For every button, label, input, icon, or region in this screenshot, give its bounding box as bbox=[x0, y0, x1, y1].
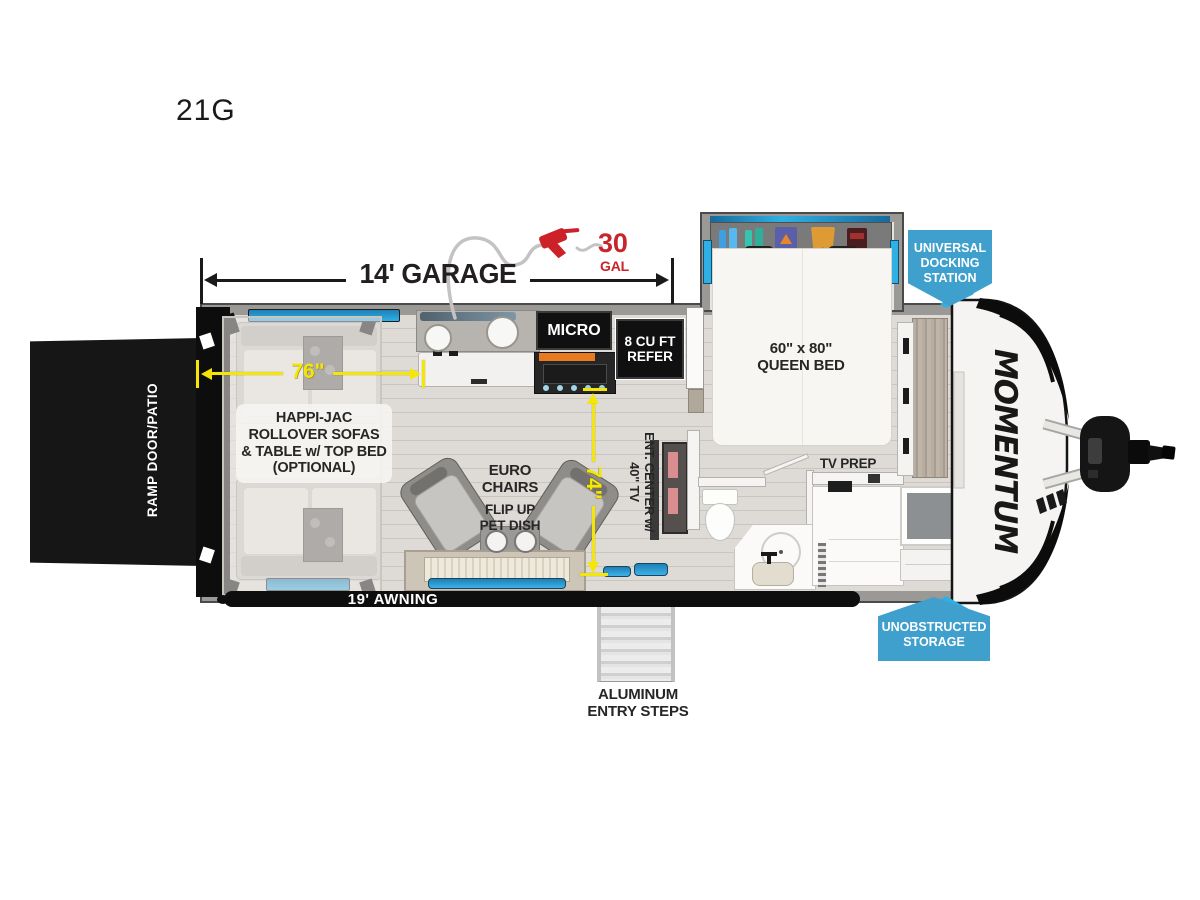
arrow-right-icon bbox=[656, 273, 669, 287]
stove-knob-icon bbox=[557, 385, 563, 391]
tv-panel bbox=[668, 452, 678, 478]
pet-bowl-icon bbox=[485, 530, 508, 553]
entry-mat bbox=[634, 563, 668, 576]
pet-bowl-icon bbox=[514, 530, 537, 553]
dim76-label: 76" bbox=[283, 360, 333, 384]
stove-burners bbox=[543, 364, 607, 384]
dim-line bbox=[215, 279, 346, 282]
ramp-door bbox=[30, 338, 202, 566]
bench-window bbox=[428, 578, 566, 589]
ent-center-tv bbox=[662, 442, 688, 534]
bath-sink bbox=[752, 562, 794, 586]
awning-bar bbox=[224, 591, 860, 607]
sink-icon bbox=[424, 324, 452, 352]
kitchen-wall-base bbox=[688, 389, 704, 413]
hitch-ball-mount bbox=[1161, 445, 1175, 459]
dim76-tick bbox=[422, 360, 425, 388]
dim74-line bbox=[592, 506, 595, 562]
entry-steps bbox=[597, 606, 675, 682]
dim74-arrow-up-icon bbox=[587, 393, 599, 404]
dim76-line bbox=[211, 372, 283, 375]
fuel-capacity-unit: GAL bbox=[600, 258, 629, 274]
accordion-door bbox=[818, 543, 826, 587]
drawer-handle-icon bbox=[449, 351, 458, 356]
drain-dot bbox=[779, 550, 783, 554]
refrigerator: 8 CU FT REFER bbox=[616, 319, 684, 379]
fuel-capacity-value: 30 bbox=[598, 230, 628, 257]
bath-wall bbox=[698, 477, 766, 487]
tv-panel bbox=[668, 488, 678, 514]
awning-label: 19' AWNING bbox=[338, 591, 448, 608]
floorplan-canvas: 21G 60" x 80" QUEEN BED RAMP DOOR/PATIO bbox=[0, 0, 1200, 900]
queen-bed-label: 60" x 80" QUEEN BED bbox=[712, 340, 890, 375]
fuel-pump-icon bbox=[538, 223, 584, 263]
faucet-handle-icon bbox=[761, 552, 777, 556]
front-cap: MOMENTUM bbox=[940, 288, 1190, 620]
dim76-tick bbox=[196, 360, 199, 388]
tv-prep-outlet bbox=[868, 474, 880, 483]
dresser-handle-icon bbox=[903, 388, 909, 404]
stove-knob-icon bbox=[543, 385, 549, 391]
kitchen-drawer bbox=[418, 352, 546, 387]
euro-chairs-label: EURO CHAIRS bbox=[478, 462, 542, 497]
kitchen-wall bbox=[686, 307, 704, 389]
slideout-accent-left bbox=[703, 240, 712, 284]
wardrobe-shelf bbox=[829, 561, 899, 562]
stove-knob-icon bbox=[571, 385, 577, 391]
wardrobe-shelf bbox=[829, 539, 899, 540]
model-title: 21G bbox=[176, 94, 236, 128]
stove-accent bbox=[539, 353, 595, 361]
dim76-line bbox=[333, 372, 411, 375]
dim76-arrow-right-icon bbox=[410, 368, 421, 380]
sofa-option-label: HAPPI-JAC ROLLOVER SOFAS & TABLE w/ TOP … bbox=[236, 404, 392, 483]
propane-vent bbox=[1088, 438, 1102, 464]
hitch-coupler bbox=[1128, 440, 1150, 464]
dim-tick bbox=[671, 258, 674, 304]
dim74-arrow-down-icon bbox=[587, 562, 599, 573]
dim74-line bbox=[592, 404, 595, 462]
dim74-tick bbox=[580, 573, 608, 576]
case-label-icon bbox=[850, 233, 864, 239]
triangle-mark-icon bbox=[780, 234, 792, 244]
pet-dish-label: FLIP UP PET DISH bbox=[473, 502, 547, 533]
tv-prep-counter bbox=[812, 472, 904, 485]
momentum-logo: MOMENTUM bbox=[987, 349, 1023, 554]
ent-center-label: ENT. CENTER w/ 40" TV bbox=[627, 422, 657, 542]
entry-steps-label: ALUMINUM ENTRY STEPS bbox=[586, 686, 690, 721]
propane-cover bbox=[1080, 416, 1130, 492]
tv-prep-label: TV PREP bbox=[818, 456, 878, 472]
dim-line bbox=[530, 279, 658, 282]
dim-tick bbox=[200, 258, 203, 304]
ramp-door-label: RAMP DOOR/PATIO bbox=[145, 370, 165, 530]
garage-dimension-label: 14' GARAGE bbox=[352, 258, 525, 290]
dresser-handle-icon bbox=[903, 338, 909, 354]
cap-window-panel bbox=[954, 372, 964, 488]
dresser-handle-icon bbox=[903, 438, 909, 454]
tv-mount-bracket bbox=[828, 481, 852, 492]
dim74-tick bbox=[583, 388, 607, 391]
propane-vent bbox=[1088, 470, 1098, 478]
drawer-handle-icon bbox=[471, 379, 487, 384]
dim74-label: 74" bbox=[581, 460, 605, 506]
